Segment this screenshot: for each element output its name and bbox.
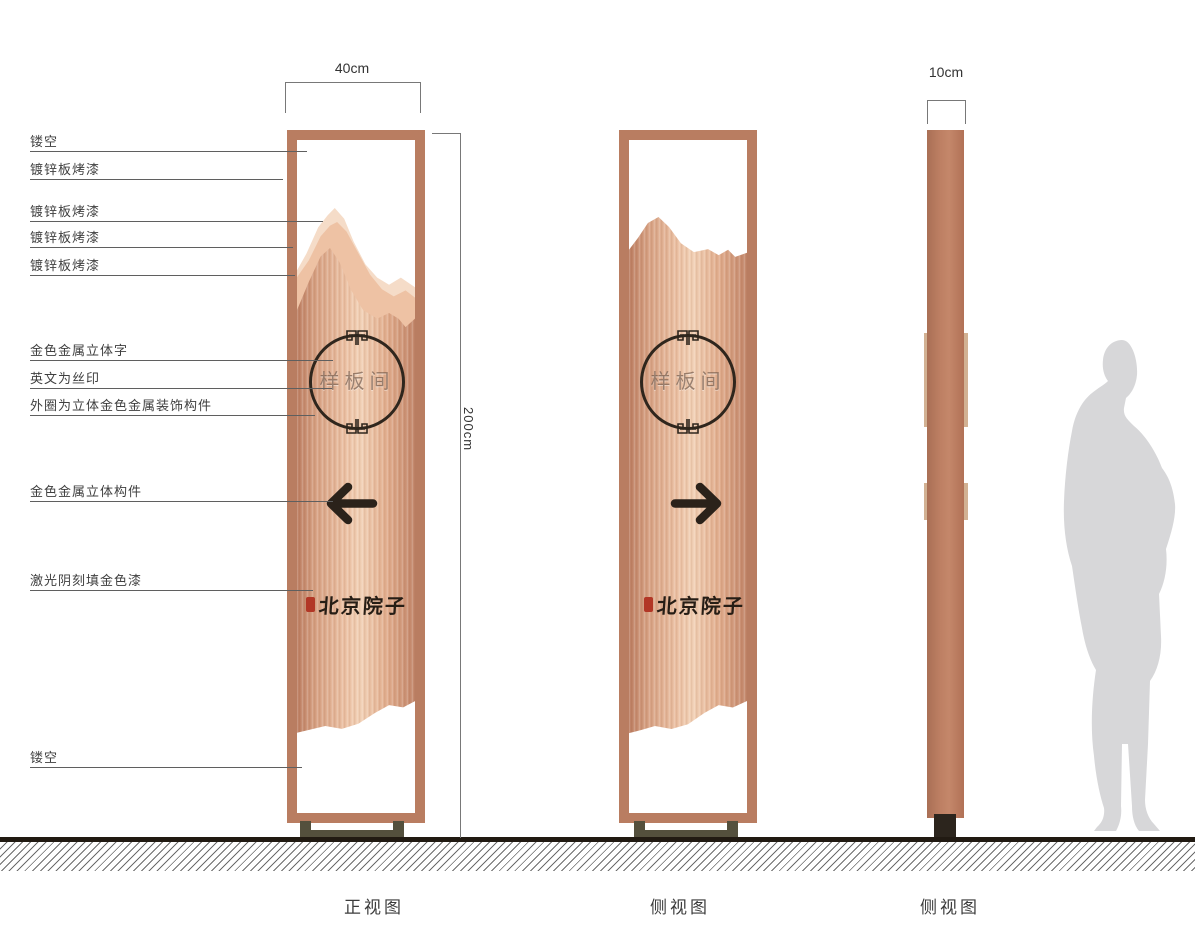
red-seal-icon xyxy=(644,597,653,612)
dim-height-label: 200cm xyxy=(461,407,476,451)
view-label-back: 侧视图 xyxy=(620,893,740,918)
dim-height-connector xyxy=(432,133,461,134)
callout-leader-line xyxy=(30,388,332,389)
callout-leader-line xyxy=(30,590,313,591)
brand-logo: 北京院子 xyxy=(305,590,407,619)
plaque-text: 样板间 xyxy=(651,365,726,394)
brand-logo: 北京院子 xyxy=(643,590,745,619)
dim-depth-bracket xyxy=(927,100,966,124)
sign-base xyxy=(300,821,404,838)
callout-label-galvanized-4: 镀锌板烤漆 xyxy=(30,258,100,274)
callout-leader-line xyxy=(30,247,293,248)
circle-emblem: 样板间 xyxy=(309,334,405,430)
ground-line xyxy=(0,837,1195,842)
callout-label-gold-letters: 金色金属立体字 xyxy=(30,343,128,359)
dim-width-bracket xyxy=(285,82,421,113)
callout-leader-line xyxy=(30,501,333,502)
fret-ornament-icon xyxy=(344,419,370,435)
view-label-side: 侧视图 xyxy=(890,893,1010,918)
human-silhouette xyxy=(1042,336,1194,838)
callout-label-galvanized-2: 镀锌板烤漆 xyxy=(30,204,100,220)
dim-width-label: 40cm xyxy=(285,60,419,76)
fret-ornament-icon xyxy=(675,419,701,435)
callout-label-laser-engrave: 激光阴刻填金色漆 xyxy=(30,573,142,589)
signage-spec-sheet: 镂空 镀锌板烤漆 镀锌板烤漆 镀锌板烤漆 镀锌板烤漆 金色金属立体字 英文为丝印… xyxy=(0,0,1195,927)
view-label-front: 正视图 xyxy=(314,893,434,918)
fret-ornament-icon xyxy=(675,329,701,345)
callout-leader-line xyxy=(30,275,295,276)
callout-label-silkscreen: 英文为丝印 xyxy=(30,371,100,387)
back-view-sign: 样板间 北京院子 xyxy=(619,130,757,823)
red-seal-icon xyxy=(306,597,315,612)
circle-emblem: 样板间 xyxy=(640,334,736,430)
sign-base xyxy=(634,821,738,838)
callout-leader-line xyxy=(30,179,283,180)
left-arrow-icon xyxy=(326,482,378,525)
dim-depth-label: 10cm xyxy=(900,64,992,80)
callout-label-galvanized-1: 镀锌板烤漆 xyxy=(30,162,100,178)
callout-leader-line xyxy=(30,767,302,768)
callout-leader-line xyxy=(30,415,315,416)
side-view-column xyxy=(927,130,964,818)
callout-label-outer-ring: 外圈为立体金色金属装饰构件 xyxy=(30,398,212,414)
right-arrow-icon xyxy=(670,482,722,525)
callout-leader-line xyxy=(30,360,333,361)
plaque-text: 样板间 xyxy=(320,365,395,394)
ground-hatch xyxy=(0,842,1195,871)
callout-label-galvanized-3: 镀锌板烤漆 xyxy=(30,230,100,246)
callout-label-hollow-bottom: 镂空 xyxy=(30,750,58,766)
front-view-sign: 样板间 北京院子 xyxy=(287,130,425,823)
logo-text: 北京院子 xyxy=(317,590,407,619)
logo-text: 北京院子 xyxy=(655,590,745,619)
fret-ornament-icon xyxy=(344,329,370,345)
callout-label-hollow-top: 镂空 xyxy=(30,134,58,150)
dim-height-line xyxy=(460,133,461,838)
callout-leader-line xyxy=(30,151,307,152)
callout-leader-line xyxy=(30,221,323,222)
callout-label-gold-component: 金色金属立体构件 xyxy=(30,484,142,500)
side-column-base xyxy=(934,814,956,838)
